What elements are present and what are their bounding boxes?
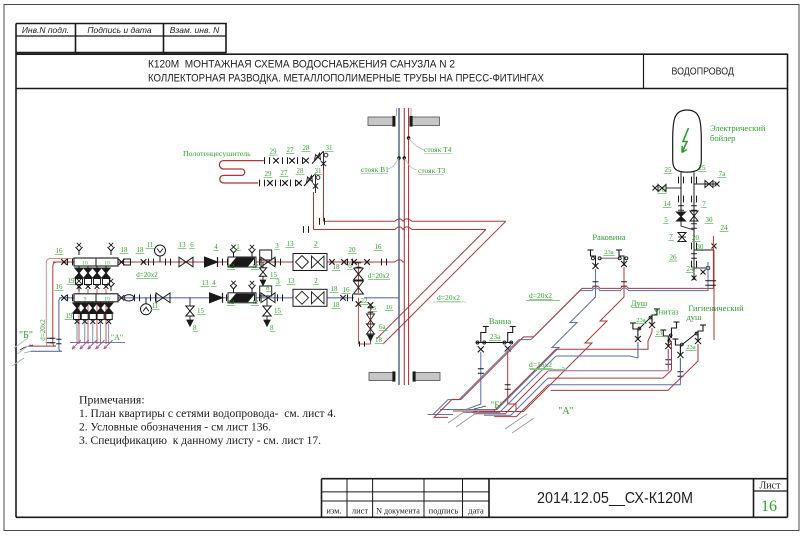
svg-text:Инв.N подл.: Инв.N подл. [22,25,69,35]
svg-text:4: 4 [212,279,216,287]
svg-text:28: 28 [297,167,305,175]
svg-text:18: 18 [331,285,339,293]
svg-text:d=20х2: d=20х2 [136,271,158,279]
svg-text:15: 15 [197,307,205,315]
svg-text:30: 30 [697,243,705,251]
svg-text:13: 13 [202,279,210,287]
svg-text:К120М МОНТАЖНАЯ СХЕМА ВОДОСНА: К120М МОНТАЖНАЯ СХЕМА ВОДОСНАБЖЕНИЯ САНУ… [148,59,455,71]
svg-text:30: 30 [706,216,714,224]
svg-text:11: 11 [147,241,154,249]
svg-text:Примечания:: Примечания: [79,393,145,407]
svg-text:25: 25 [665,166,673,174]
svg-text:18: 18 [375,336,383,344]
svg-text:6а: 6а [379,323,387,331]
svg-text:23а: 23а [636,317,646,324]
svg-text:16: 16 [375,243,383,251]
svg-text:20: 20 [692,234,700,242]
svg-text:8: 8 [193,324,197,332]
svg-text:29: 29 [270,148,278,156]
svg-text:31: 31 [326,144,334,152]
svg-text:стояк В1: стояк В1 [361,165,389,174]
svg-text:Полотенцесушитель: Полотенцесушитель [183,149,251,158]
svg-text:"А": "А" [111,333,123,342]
svg-text:23а: 23а [490,333,501,341]
svg-text:27: 27 [287,146,295,154]
svg-text:13: 13 [287,240,295,248]
svg-text:16: 16 [56,247,64,255]
svg-text:бойлер: бойлер [710,133,735,143]
svg-text:7: 7 [669,233,673,241]
svg-text:24: 24 [687,265,695,273]
svg-text:подпись: подпись [429,506,459,516]
svg-text:12: 12 [228,263,235,270]
svg-text:изм.: изм. [326,506,341,516]
svg-text:Подпись и дата: Подпись и дата [87,25,152,35]
svg-text:29: 29 [265,170,273,178]
svg-text:16: 16 [761,498,777,515]
svg-text:2. Условные обозначения - см л: 2. Условные обозначения - см лист 136. [79,420,271,434]
svg-text:16: 16 [343,286,351,294]
svg-text:"Б": "Б" [19,330,33,341]
svg-text:7а: 7а [719,170,727,178]
svg-text:"Б": "Б" [490,401,503,411]
svg-text:31: 31 [315,167,323,175]
svg-text:стояк Т3: стояк Т3 [418,166,446,175]
svg-text:22: 22 [361,297,369,305]
svg-text:3: 3 [276,278,280,286]
svg-text:13: 13 [288,277,296,285]
svg-text:28: 28 [303,144,311,152]
svg-text:18: 18 [333,301,341,309]
svg-text:18: 18 [137,246,145,254]
svg-text:Душ: Душ [631,298,648,308]
svg-text:14: 14 [664,200,672,208]
svg-text:Раковина: Раковина [592,232,626,242]
svg-text:2: 2 [314,277,318,285]
svg-text:2014.12.05__СХ-К120М: 2014.12.05__СХ-К120М [537,490,693,507]
svg-text:ВОДОПРОВОД: ВОДОПРОВОД [672,67,735,78]
svg-text:23а: 23а [604,249,614,256]
svg-text:6: 6 [348,262,352,270]
svg-text:d=16х2: d=16х2 [529,360,552,369]
svg-text:душ: душ [686,312,702,322]
svg-text:7: 7 [702,200,706,208]
svg-text:25: 25 [699,164,707,172]
svg-text:18: 18 [121,246,129,254]
svg-text:27: 27 [281,169,289,177]
svg-text:12: 12 [228,299,235,306]
svg-text:Взам. инв. N: Взам. инв. N [170,25,220,35]
svg-text:d=20х2: d=20х2 [437,293,460,302]
svg-text:4: 4 [214,243,218,251]
svg-text:10: 10 [104,261,110,267]
svg-text:N документа: N документа [376,507,420,516]
svg-text:Электрический: Электрический [710,123,766,133]
svg-text:18: 18 [333,263,341,271]
svg-text:19: 19 [68,277,76,285]
svg-text:1: 1 [236,243,240,251]
svg-text:26: 26 [670,254,678,262]
svg-text:d=20х2: d=20х2 [39,319,47,341]
svg-text:d=20х2: d=20х2 [529,291,552,300]
svg-text:1. План квартиры с сетями водо: 1. План квартиры с сетями водопровода- с… [79,406,336,420]
svg-text:5: 5 [664,216,668,224]
svg-text:"А": "А" [558,406,573,417]
svg-text:6: 6 [190,241,194,249]
svg-text:16: 16 [56,283,64,291]
svg-text:КОЛЛЕКТОРНАЯ РАЗВОДКА. МЕТАЛЛО: КОЛЛЕКТОРНАЯ РАЗВОДКА. МЕТАЛЛОПОЛИМЕРНЫЕ… [148,73,544,85]
svg-text:23а: 23а [686,344,696,351]
svg-text:Унитаз: Унитаз [653,307,679,317]
svg-text:Ванна: Ванна [489,316,512,326]
svg-text:24: 24 [721,224,729,232]
svg-text:3: 3 [275,242,279,250]
svg-text:16: 16 [386,304,393,311]
svg-text:стояк Т4: стояк Т4 [424,145,452,154]
svg-text:дата: дата [468,506,484,516]
svg-text:13: 13 [179,241,187,249]
svg-text:8: 8 [270,324,274,332]
svg-text:d=20х2: d=20х2 [368,272,390,280]
svg-text:20: 20 [349,246,357,254]
svg-text:8: 8 [266,284,270,292]
svg-text:10: 10 [104,297,110,303]
svg-text:19: 19 [66,312,74,320]
svg-text:Лист: Лист [760,481,782,492]
svg-text:23: 23 [656,330,663,337]
svg-text:15: 15 [274,307,282,315]
svg-text:3. Спецификацию к данному лис: 3. Спецификацию к данному листу - см. ли… [79,433,321,447]
svg-text:11: 11 [152,302,159,310]
svg-text:лист: лист [352,506,369,516]
svg-text:10: 10 [82,261,88,267]
svg-text:2: 2 [314,240,318,248]
svg-text:15: 15 [270,271,278,279]
svg-text:9: 9 [84,297,87,303]
